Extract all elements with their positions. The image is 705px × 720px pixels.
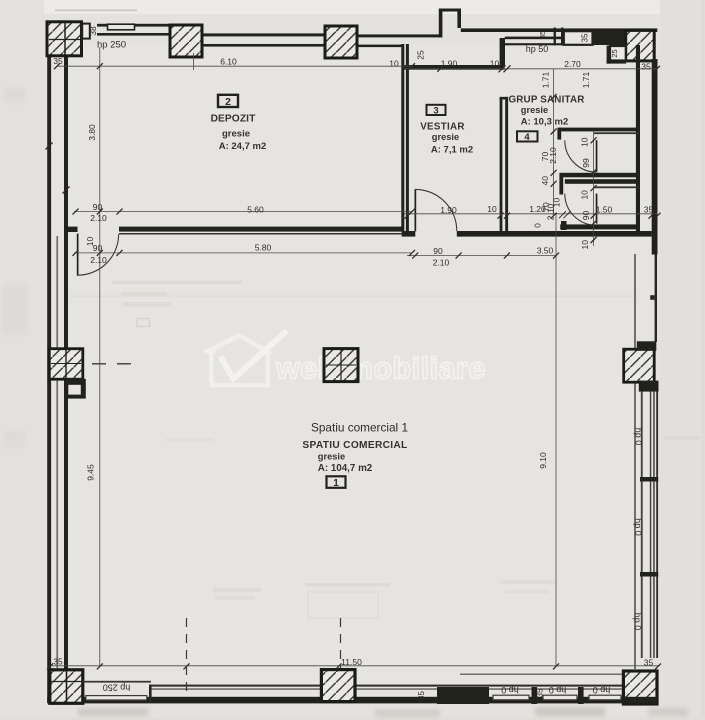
svg-text:hp 50: hp 50 — [526, 44, 549, 54]
svg-text:1.71: 1.71 — [540, 71, 550, 88]
svg-text:2.10: 2.10 — [545, 203, 555, 220]
svg-text:hp 0: hp 0 — [633, 518, 643, 536]
svg-text:hp 0: hp 0 — [634, 428, 644, 446]
svg-text:35: 35 — [581, 33, 590, 42]
svg-text:hp 0: hp 0 — [549, 685, 567, 695]
svg-text:10: 10 — [580, 240, 590, 250]
svg-text:hp 0: hp 0 — [633, 613, 643, 631]
svg-text:10: 10 — [580, 137, 590, 147]
svg-text:35: 35 — [538, 31, 547, 39]
svg-text:70: 70 — [540, 152, 550, 162]
svg-text:0: 0 — [532, 223, 542, 228]
svg-text:gresie: gresie — [521, 105, 548, 115]
svg-text:35: 35 — [644, 205, 654, 215]
svg-text:3.50: 3.50 — [537, 246, 554, 256]
svg-text:90: 90 — [433, 246, 443, 256]
svg-text:99: 99 — [581, 158, 591, 168]
svg-text:3.80: 3.80 — [87, 124, 97, 141]
svg-text:5.60: 5.60 — [247, 205, 264, 215]
svg-text:hp 0: hp 0 — [593, 685, 611, 695]
svg-text:A: 104,7 m2: A: 104,7 m2 — [318, 463, 373, 474]
svg-text:11.50: 11.50 — [341, 657, 362, 667]
svg-text:DEPOZIT: DEPOZIT — [211, 114, 257, 125]
svg-text:90: 90 — [93, 243, 103, 253]
svg-text:2.10: 2.10 — [90, 255, 107, 265]
svg-text:2: 2 — [225, 96, 231, 108]
svg-text:90: 90 — [581, 211, 591, 221]
svg-text:35: 35 — [641, 62, 651, 72]
svg-text:2.70: 2.70 — [564, 59, 581, 69]
svg-text:Spatiu comercial 1: Spatiu comercial 1 — [311, 421, 408, 435]
svg-text:3: 3 — [433, 106, 438, 117]
svg-text:1.50: 1.50 — [596, 205, 613, 215]
svg-text:2.10: 2.10 — [433, 257, 450, 267]
svg-text:90: 90 — [93, 202, 103, 212]
svg-text:40: 40 — [540, 176, 550, 186]
svg-text:10: 10 — [490, 59, 500, 69]
svg-text:hp 0: hp 0 — [501, 685, 519, 695]
svg-text:10: 10 — [580, 190, 590, 200]
svg-text:9.45: 9.45 — [86, 464, 96, 481]
svg-text:35: 35 — [536, 688, 545, 697]
svg-text:VESTIAR: VESTIAR — [420, 122, 465, 133]
svg-text:5.80: 5.80 — [255, 243, 272, 253]
svg-text:2.10: 2.10 — [90, 213, 107, 223]
svg-text:1.90: 1.90 — [440, 205, 457, 215]
svg-text:10: 10 — [389, 59, 399, 69]
svg-text:gresie: gresie — [432, 132, 459, 142]
svg-text:9.10: 9.10 — [538, 452, 548, 469]
svg-text:hp 250: hp 250 — [97, 40, 126, 51]
svg-text:35: 35 — [644, 658, 654, 668]
svg-text:4: 4 — [524, 132, 530, 143]
svg-text:35: 35 — [53, 657, 63, 667]
svg-text:25: 25 — [610, 49, 619, 57]
svg-text:A: 24,7 m2: A: 24,7 m2 — [219, 141, 267, 152]
svg-text:6.10: 6.10 — [220, 57, 237, 67]
svg-text:SPATIU COMERCIAL: SPATIU COMERCIAL — [302, 440, 407, 451]
svg-text:35: 35 — [53, 56, 63, 66]
svg-text:85: 85 — [417, 691, 426, 700]
svg-text:1.90: 1.90 — [441, 59, 458, 69]
svg-text:10: 10 — [487, 204, 497, 214]
svg-text:25: 25 — [416, 50, 426, 60]
svg-text:A: 10,3 m2: A: 10,3 m2 — [521, 116, 569, 127]
svg-text:gresie: gresie — [318, 452, 345, 462]
svg-text:webimobiliare: webimobiliare — [275, 352, 486, 386]
svg-text:38: 38 — [88, 26, 98, 36]
svg-text:1.71: 1.71 — [581, 71, 591, 88]
svg-text:gresie: gresie — [222, 129, 250, 140]
svg-text:1: 1 — [333, 478, 339, 489]
svg-text:A: 7,1 m2: A: 7,1 m2 — [431, 145, 473, 156]
svg-text:hp 250: hp 250 — [103, 683, 131, 693]
